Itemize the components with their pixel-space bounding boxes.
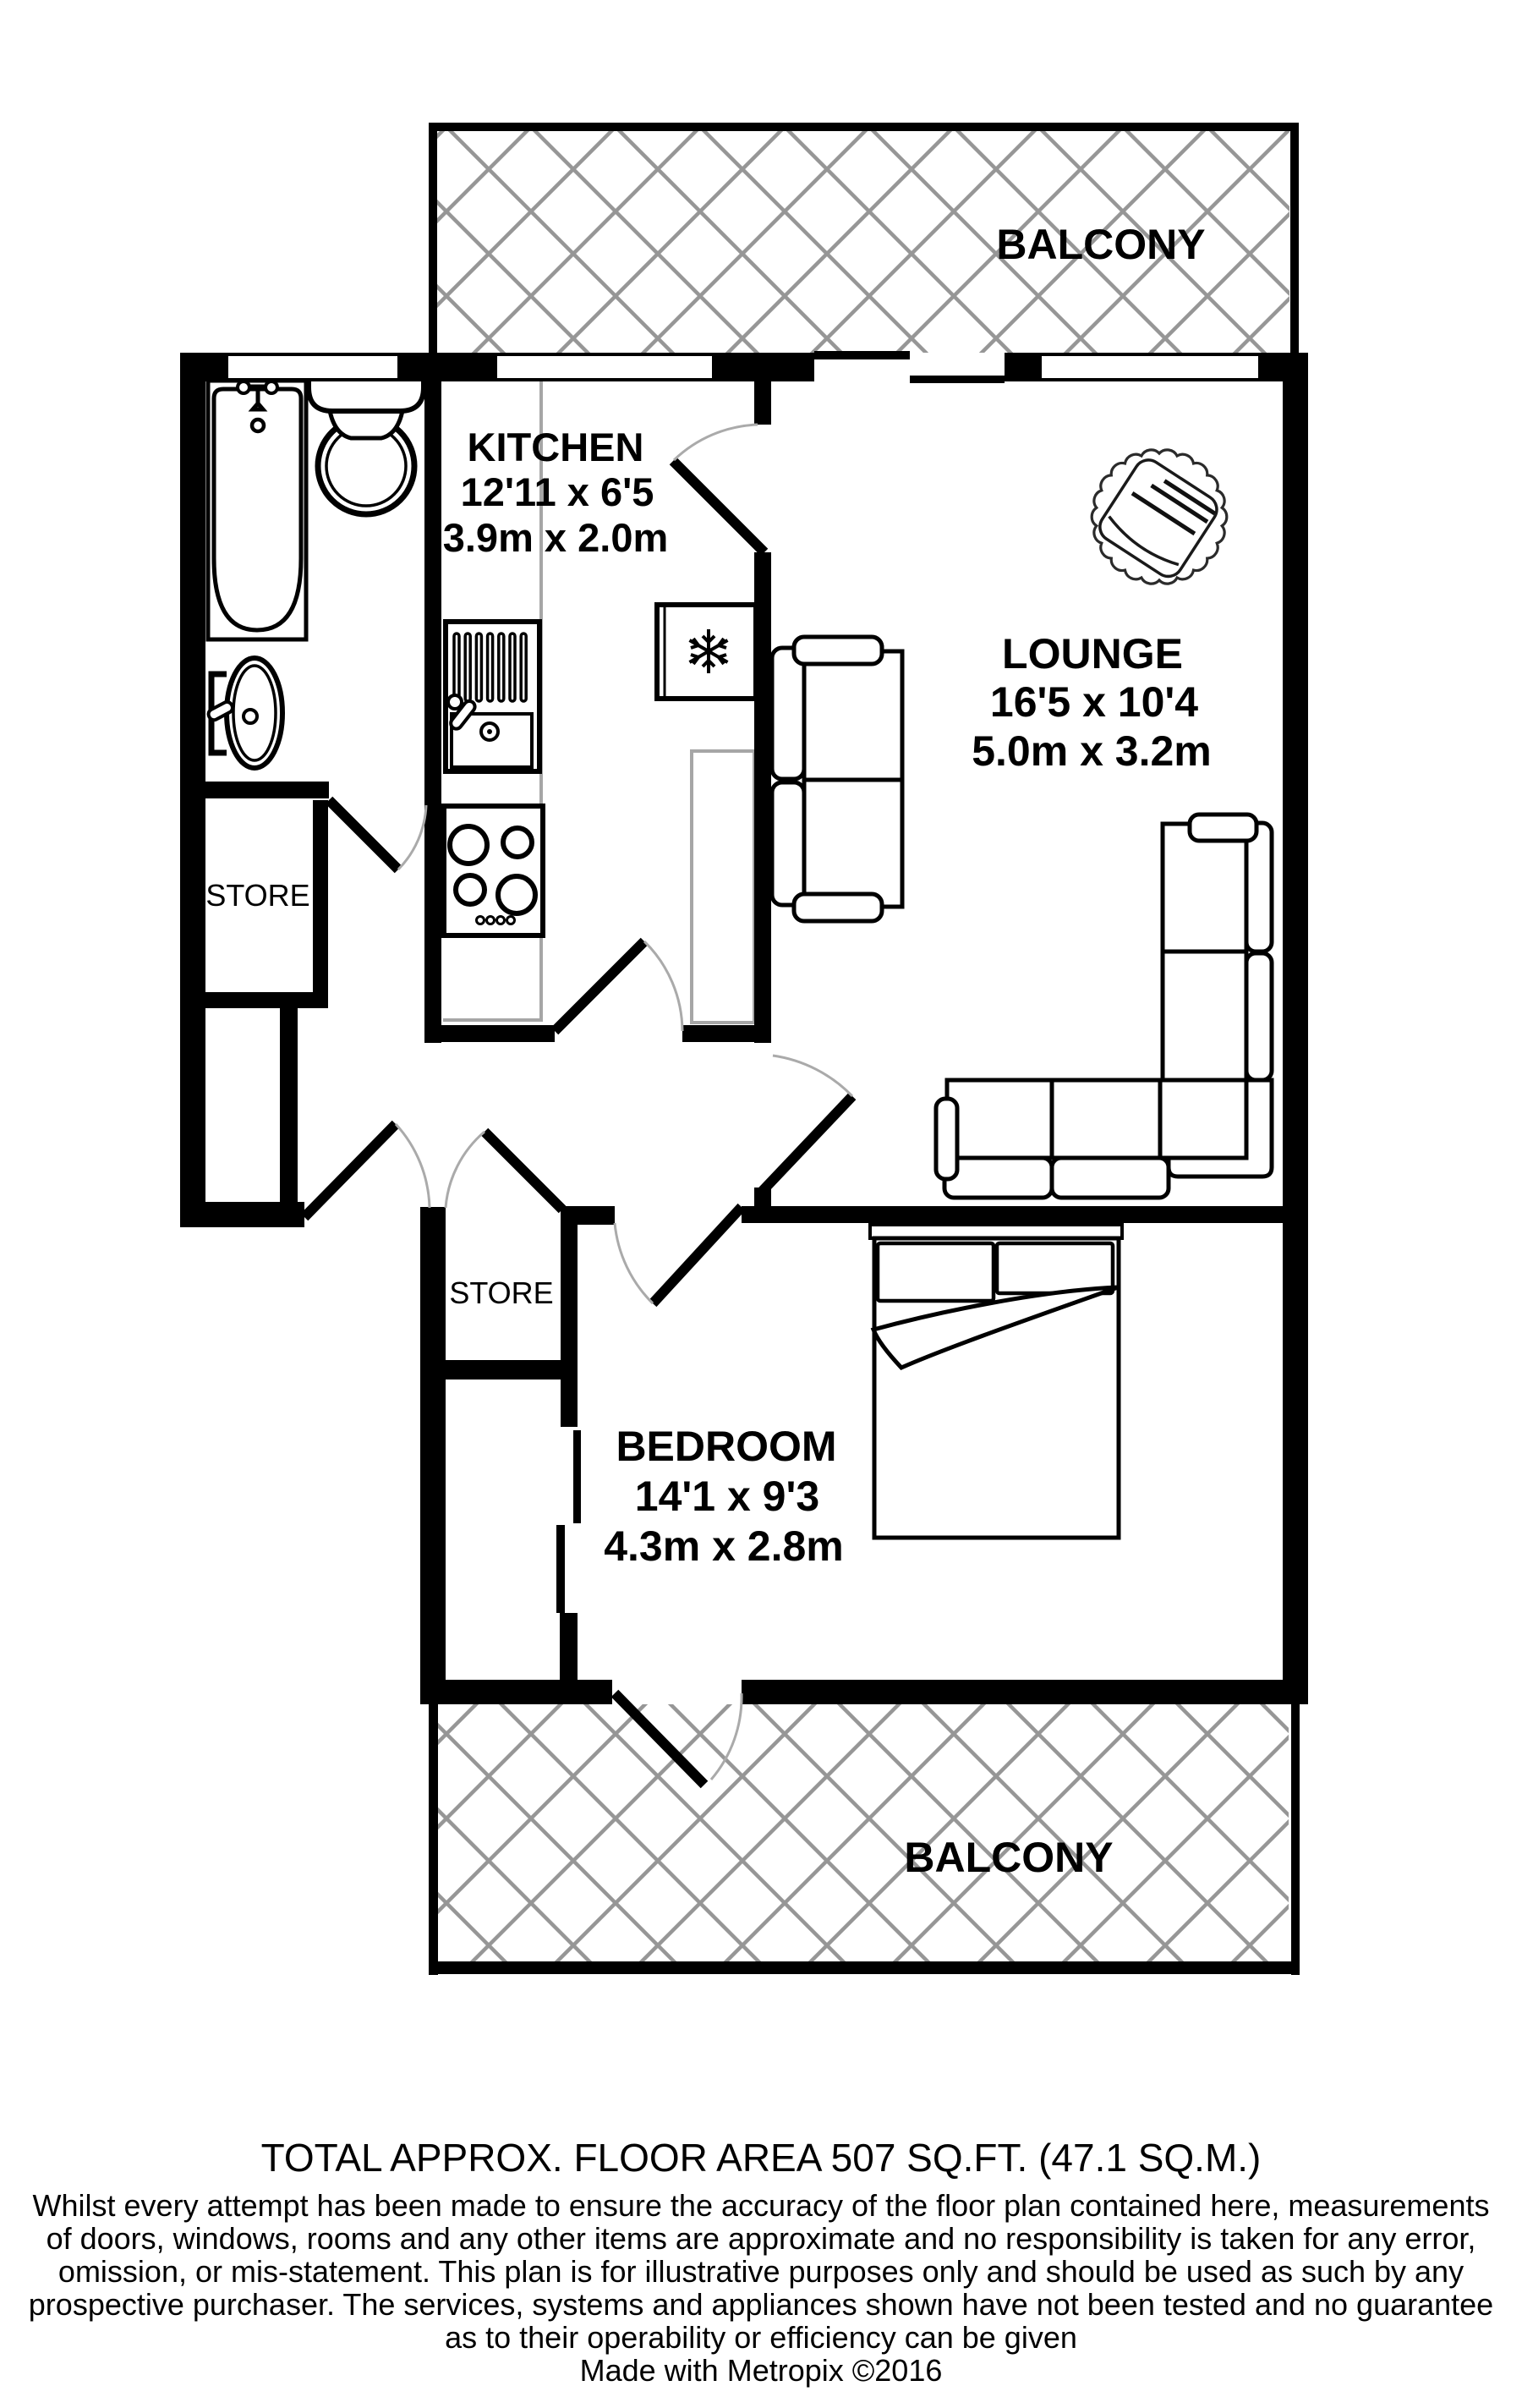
svg-text:BEDROOM: BEDROOM <box>616 1423 836 1470</box>
svg-text:STORE: STORE <box>449 1275 553 1310</box>
svg-text:3.9m x 2.0m: 3.9m x 2.0m <box>443 515 669 560</box>
svg-text:KITCHEN: KITCHEN <box>468 425 644 469</box>
svg-text:omission, or mis-statement. Th: omission, or mis-statement. This plan is… <box>58 2254 1464 2289</box>
svg-text:14'1 x 9'3: 14'1 x 9'3 <box>635 1473 819 1520</box>
svg-text:STORE: STORE <box>205 878 309 913</box>
svg-text:Whilst every attempt has been: Whilst every attempt has been made to en… <box>33 2188 1490 2223</box>
svg-text:16'5 x 10'4: 16'5 x 10'4 <box>990 678 1198 726</box>
svg-text:5.0m x 3.2m: 5.0m x 3.2m <box>972 727 1212 775</box>
svg-text:LOUNGE: LOUNGE <box>1002 630 1183 677</box>
svg-text:prospective purchaser. The ser: prospective purchaser. The services, sys… <box>29 2287 1493 2322</box>
svg-text:Made with Metropix ©2016: Made with Metropix ©2016 <box>580 2353 943 2388</box>
svg-text:12'11 x 6'5: 12'11 x 6'5 <box>461 469 654 514</box>
svg-text:BALCONY: BALCONY <box>904 1834 1113 1881</box>
svg-text:of doors, windows, rooms and a: of doors, windows, rooms and any other i… <box>47 2221 1476 2256</box>
svg-text:BALCONY: BALCONY <box>996 221 1205 268</box>
svg-text:4.3m x 2.8m: 4.3m x 2.8m <box>604 1522 844 1570</box>
svg-text:as to their operability or eff: as to their operability or efficiency ca… <box>445 2320 1077 2355</box>
svg-text:TOTAL APPROX. FLOOR AREA 507 S: TOTAL APPROX. FLOOR AREA 507 SQ.FT. (47.… <box>261 2136 1262 2180</box>
